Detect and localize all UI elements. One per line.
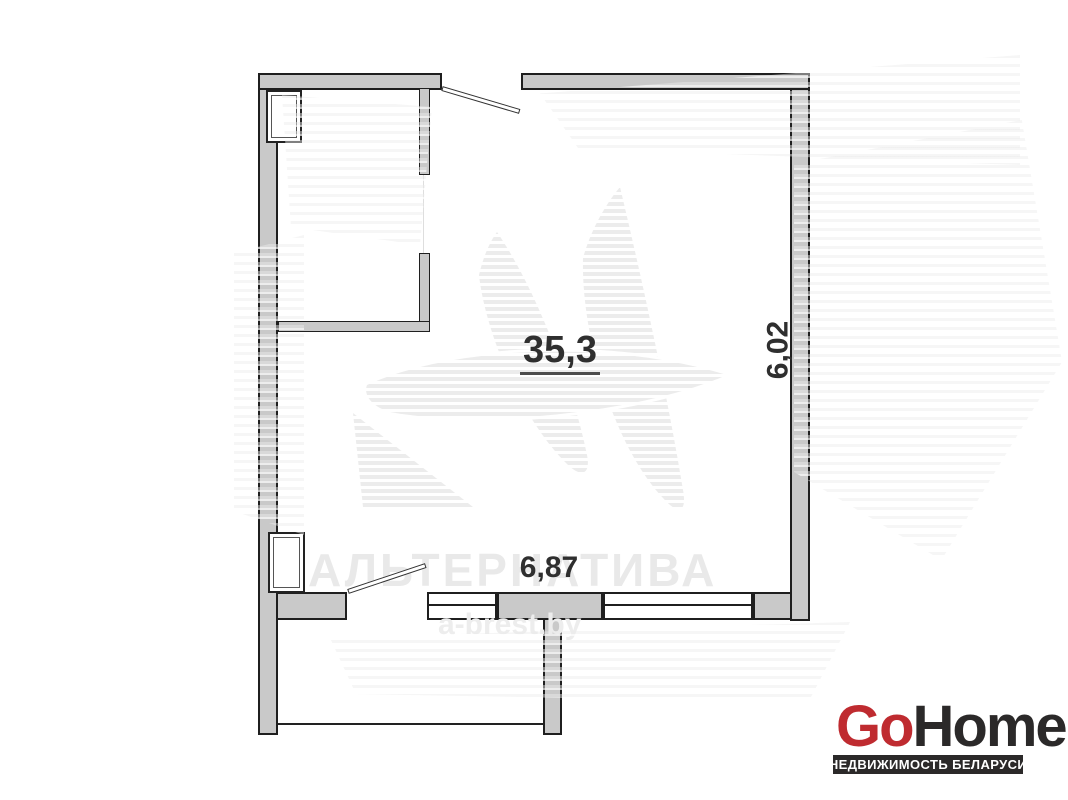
dimension-vertical: 6,02 xyxy=(762,315,792,386)
balcony-edge xyxy=(278,723,543,725)
gohome-logo-go: Go xyxy=(836,694,913,759)
floorplan-image: АЛЬТЕРНАТИВА xyxy=(0,0,1068,800)
window-left-lower xyxy=(268,532,305,593)
window-frame-icon xyxy=(271,95,297,138)
room-area-label: 35,3 xyxy=(505,331,615,375)
gohome-logo: GoHome НЕДВИЖИМОСТЬ БЕЛАРУСИ xyxy=(825,698,1068,774)
window-frame-icon xyxy=(273,537,300,588)
partition-closet-right-lower xyxy=(419,253,430,323)
window-mullion-icon xyxy=(605,604,751,606)
gohome-tagline: НЕДВИЖИМОСТЬ БЕЛАРУСИ xyxy=(833,755,1023,774)
wall-bottom-left xyxy=(276,592,347,620)
floor-plan xyxy=(0,0,1068,800)
gohome-logo-text: GoHome xyxy=(836,698,1068,756)
gohome-logo-home: Home xyxy=(913,694,1066,759)
wall-left xyxy=(258,73,278,735)
balcony-door-leaf xyxy=(347,563,426,594)
wall-top-left xyxy=(258,73,442,90)
partition-closet-bottom xyxy=(278,321,430,332)
partition-closet-right-upper xyxy=(419,88,430,175)
watermark-site-text: a-brest.by xyxy=(438,608,608,642)
wall-top-right xyxy=(521,73,810,90)
window-mullion-icon xyxy=(429,604,495,606)
closet-door-opening xyxy=(423,175,424,253)
wall-bottom-right-corner xyxy=(753,592,792,620)
room-area-value: 35,3 xyxy=(520,331,600,375)
entrance-door-leaf xyxy=(441,86,520,114)
dimension-horizontal: 6,87 xyxy=(499,551,599,585)
window-bottom-large xyxy=(603,592,753,620)
window-left-upper xyxy=(266,90,302,143)
